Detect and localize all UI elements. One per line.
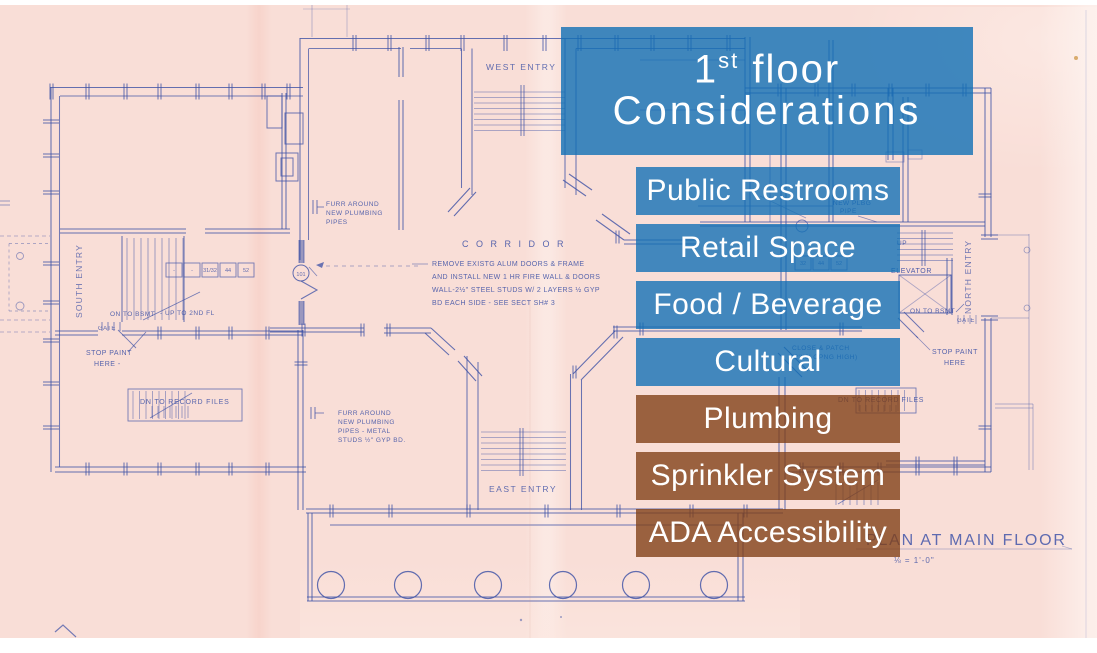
svg-text:44: 44 <box>225 268 231 274</box>
svg-text:31/32: 31/32 <box>203 268 217 274</box>
svg-text:ON TO BSMT: ON TO BSMT <box>110 311 155 318</box>
svg-text:GATE: GATE <box>957 318 975 324</box>
svg-text:HERE: HERE <box>944 360 965 367</box>
svg-text:STOP PAINT: STOP PAINT <box>932 349 978 356</box>
svg-text:BD EACH SIDE - SEE SECT SH# 3: BD EACH SIDE - SEE SECT SH# 3 <box>432 300 555 307</box>
svg-text:-: - <box>173 268 175 274</box>
svg-text:SOUTH ENTRY: SOUTH ENTRY <box>74 244 84 318</box>
svg-text:PIPES - METAL: PIPES - METAL <box>338 428 391 435</box>
svg-text:FURR AROUND: FURR AROUND <box>326 201 379 208</box>
svg-text:- UP TO 2ND FL: - UP TO 2ND FL <box>160 310 215 317</box>
svg-text:52: 52 <box>243 268 249 274</box>
svg-text:C O R R I D O R: C O R R I D O R <box>462 239 566 249</box>
svg-text:ON TO BSMT: ON TO BSMT <box>910 308 955 315</box>
svg-text:FURR AROUND: FURR AROUND <box>338 410 391 417</box>
svg-text:EAST ENTRY: EAST ENTRY <box>489 484 557 494</box>
svg-text:AND INSTALL NEW 1 HR FIRE WALL: AND INSTALL NEW 1 HR FIRE WALL & DOORS <box>432 274 600 281</box>
svg-text:WEST ENTRY: WEST ENTRY <box>486 62 556 72</box>
svg-text:STUDS ½" GYP BD.: STUDS ½" GYP BD. <box>338 436 406 444</box>
svg-text:HERE -: HERE - <box>94 361 121 368</box>
svg-text:REMOVE EXISTG ALUM DOORS & FRA: REMOVE EXISTG ALUM DOORS & FRAME <box>432 261 584 268</box>
svg-text:101: 101 <box>296 272 305 278</box>
svg-text:NORTH ENTRY: NORTH ENTRY <box>963 240 973 314</box>
svg-text:WALL-2½" STEEL STUDS W/ 2 LAYE: WALL-2½" STEEL STUDS W/ 2 LAYERS ½ GYP <box>432 286 600 294</box>
svg-text:⅛ = 1'-0": ⅛ = 1'-0" <box>894 556 935 565</box>
svg-text:-: - <box>191 268 193 274</box>
svg-text:DN TO RECORD FILES: DN TO RECORD FILES <box>140 399 230 406</box>
svg-text:GATE: GATE <box>98 326 116 332</box>
svg-text:NEW PLUMBING: NEW PLUMBING <box>326 210 383 217</box>
svg-text:NEW PLUMBING: NEW PLUMBING <box>338 419 395 426</box>
svg-text:STOP PAINT: STOP PAINT <box>86 350 132 357</box>
svg-text:PIPES: PIPES <box>326 219 348 226</box>
